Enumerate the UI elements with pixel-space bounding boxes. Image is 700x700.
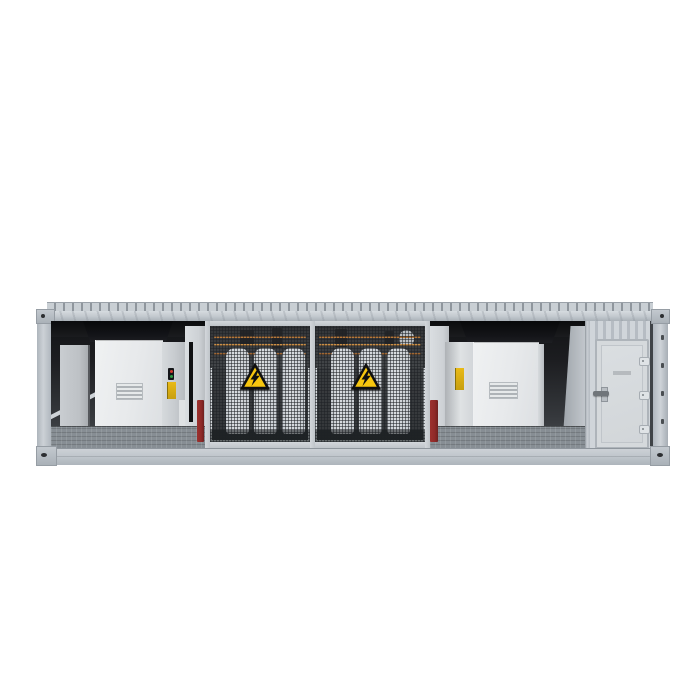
partition-slot	[189, 342, 193, 422]
door-label-plate	[613, 371, 631, 375]
pcs-cabinet-left	[95, 340, 163, 433]
corner-casting-bottom-right	[650, 446, 670, 466]
louver-vent	[489, 382, 518, 399]
red-bollard	[197, 400, 204, 442]
high-voltage-warning-icon	[240, 363, 270, 390]
pcs-cabinet-right	[473, 342, 539, 433]
checker-floor	[430, 426, 588, 448]
casting-hole	[41, 453, 47, 457]
cabinet-top-duct	[460, 321, 560, 343]
lock-rod-bracket	[661, 391, 664, 396]
door-hinge	[639, 425, 650, 434]
red-bollard	[430, 400, 438, 442]
cabinet-top-duct	[83, 321, 173, 342]
render-scene	[0, 0, 700, 700]
door-hinge	[639, 391, 650, 400]
casting-hole	[41, 314, 45, 318]
access-door	[595, 339, 649, 448]
casting-hole	[660, 314, 664, 318]
warning-sticker	[167, 382, 176, 399]
lock-rod-bracket	[661, 335, 664, 340]
casting-hole	[657, 453, 663, 457]
corner-casting-top-right	[651, 309, 670, 324]
substation-container	[37, 302, 668, 464]
door-hinge	[639, 357, 650, 366]
high-voltage-warning-icon	[351, 363, 381, 390]
corner-casting-bottom-left	[36, 446, 57, 466]
red-indicator-light	[170, 370, 173, 373]
lock-rod-bracket	[661, 419, 664, 424]
rail-groove	[37, 456, 668, 457]
indicator-panel	[168, 368, 174, 380]
left-corner-post	[37, 311, 51, 464]
warning-sticker	[455, 368, 464, 390]
right-corner-post	[653, 311, 668, 464]
pcs-cabinet-right-side	[538, 344, 544, 431]
equipment-bay-left	[51, 321, 205, 448]
transformer-cage	[205, 321, 430, 448]
side-cabinet	[445, 342, 473, 429]
checker-floor	[51, 426, 205, 448]
green-indicator-light	[170, 375, 173, 378]
bottom-rail	[37, 448, 668, 465]
access-door-panel	[590, 321, 653, 448]
rear-cabinet	[60, 345, 90, 427]
louver-vent	[116, 383, 143, 400]
door-handle	[593, 391, 609, 396]
lock-rod-bracket	[661, 363, 664, 368]
equipment-bay-right	[430, 321, 588, 448]
